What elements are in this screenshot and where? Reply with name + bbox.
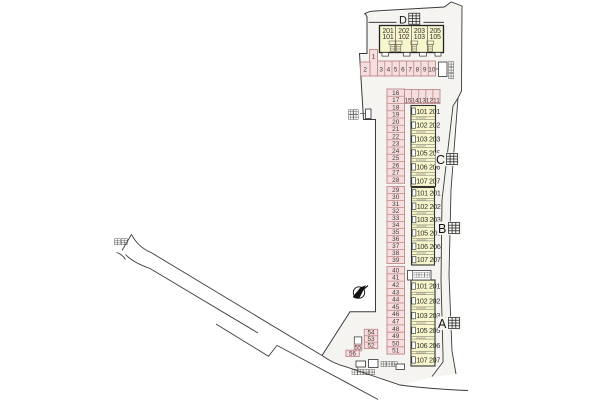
svg-text:C: C <box>436 153 445 167</box>
svg-text:37: 37 <box>392 243 400 250</box>
svg-text:17: 17 <box>392 97 400 104</box>
svg-text:101 201: 101 201 <box>417 188 441 197</box>
svg-text:43: 43 <box>392 289 400 296</box>
svg-text:4: 4 <box>387 67 391 74</box>
svg-text:1: 1 <box>372 54 376 61</box>
svg-text:38: 38 <box>392 250 400 257</box>
svg-text:101: 101 <box>382 34 393 41</box>
svg-text:101 201: 101 201 <box>416 107 440 116</box>
svg-text:27: 27 <box>392 170 400 177</box>
svg-text:56: 56 <box>349 350 356 357</box>
svg-text:35: 35 <box>392 229 400 236</box>
svg-text:103: 103 <box>414 34 425 41</box>
svg-text:44: 44 <box>392 297 400 304</box>
svg-text:25: 25 <box>392 155 400 162</box>
svg-text:52: 52 <box>367 343 375 350</box>
svg-text:106 206: 106 206 <box>416 341 440 350</box>
svg-text:28: 28 <box>392 177 400 184</box>
svg-text:42: 42 <box>392 282 400 289</box>
svg-text:48: 48 <box>392 326 400 333</box>
svg-text:20: 20 <box>392 119 400 126</box>
svg-text:29: 29 <box>392 187 400 194</box>
svg-text:39: 39 <box>392 257 400 264</box>
svg-text:107 207: 107 207 <box>416 176 440 185</box>
svg-text:A: A <box>438 317 447 331</box>
svg-text:36: 36 <box>392 236 400 243</box>
svg-text:103 203: 103 203 <box>416 311 440 320</box>
svg-text:105: 105 <box>430 34 441 41</box>
svg-text:102 202: 102 202 <box>416 296 440 305</box>
svg-text:3: 3 <box>379 67 383 74</box>
svg-text:7: 7 <box>408 67 412 74</box>
svg-text:30: 30 <box>392 194 400 201</box>
svg-text:B: B <box>438 222 446 236</box>
svg-text:32: 32 <box>392 208 400 215</box>
svg-text:107 207: 107 207 <box>417 255 441 264</box>
svg-text:26: 26 <box>392 162 400 169</box>
svg-text:40: 40 <box>392 267 400 274</box>
svg-text:46: 46 <box>392 311 400 318</box>
svg-text:45: 45 <box>392 304 400 311</box>
svg-text:101 201: 101 201 <box>416 282 440 291</box>
svg-text:19: 19 <box>392 112 400 119</box>
svg-text:5: 5 <box>394 67 398 74</box>
svg-text:102: 102 <box>398 34 409 41</box>
svg-text:11: 11 <box>433 97 440 104</box>
svg-text:102 202: 102 202 <box>417 202 441 211</box>
svg-text:22: 22 <box>392 133 400 140</box>
svg-text:49: 49 <box>392 333 400 340</box>
svg-text:34: 34 <box>392 222 400 229</box>
svg-text:102 202: 102 202 <box>416 121 440 130</box>
svg-text:2: 2 <box>363 67 367 74</box>
svg-text:47: 47 <box>392 318 400 325</box>
svg-text:106 206: 106 206 <box>417 242 441 251</box>
svg-text:41: 41 <box>392 275 400 282</box>
svg-text:105 205: 105 205 <box>416 326 440 335</box>
svg-text:D: D <box>399 15 407 27</box>
svg-text:10: 10 <box>428 67 436 74</box>
svg-text:107 207: 107 207 <box>416 356 440 365</box>
svg-text:50: 50 <box>392 340 400 347</box>
svg-text:9: 9 <box>423 67 427 74</box>
svg-text:23: 23 <box>392 141 400 148</box>
svg-text:16: 16 <box>392 90 400 97</box>
svg-text:21: 21 <box>392 126 400 133</box>
svg-text:51: 51 <box>392 348 400 355</box>
svg-text:31: 31 <box>392 201 400 208</box>
svg-text:6: 6 <box>401 67 405 74</box>
svg-text:33: 33 <box>392 215 400 222</box>
svg-text:24: 24 <box>392 148 400 155</box>
svg-text:103 203: 103 203 <box>416 135 440 144</box>
svg-text:8: 8 <box>416 67 420 74</box>
svg-text:18: 18 <box>392 104 400 111</box>
